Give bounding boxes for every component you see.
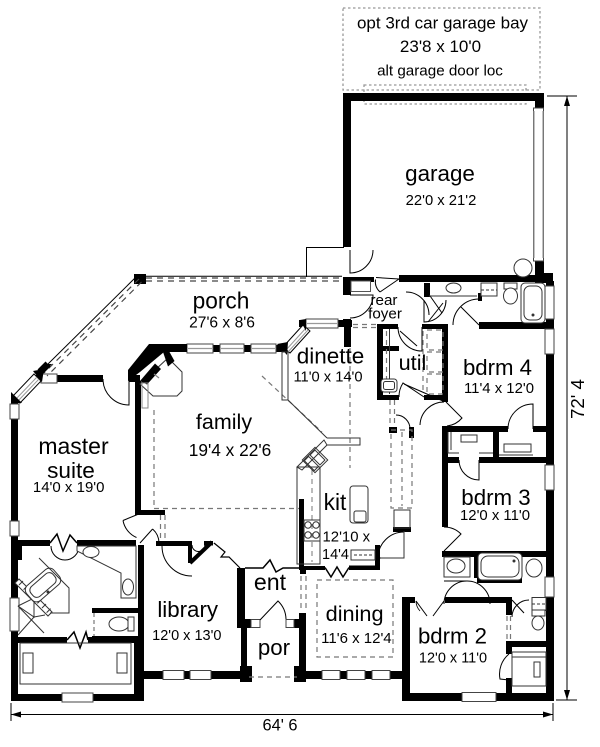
svg-text:14'0 x 19'0: 14'0 x 19'0	[33, 479, 105, 496]
svg-text:11'6 x 12'4: 11'6 x 12'4	[321, 630, 392, 647]
svg-text:library: library	[157, 597, 219, 622]
svg-text:ent: ent	[254, 569, 287, 595]
svg-text:garage: garage	[405, 161, 475, 186]
svg-text:23'8 x 10'0: 23'8 x 10'0	[400, 37, 481, 56]
svg-text:14'4: 14'4	[322, 547, 349, 563]
svg-text:dining: dining	[326, 601, 384, 626]
svg-text:alt garage door loc: alt garage door loc	[377, 63, 503, 80]
svg-text:foyer: foyer	[368, 306, 402, 323]
svg-text:family: family	[196, 410, 252, 434]
svg-text:27'6 x 8'6: 27'6 x 8'6	[189, 315, 255, 332]
svg-text:bdrm 2: bdrm 2	[418, 624, 487, 649]
svg-text:72' 4: 72' 4	[567, 379, 588, 419]
svg-text:11'0 x 14'0: 11'0 x 14'0	[293, 370, 362, 386]
svg-text:12'0 x 11'0: 12'0 x 11'0	[419, 651, 487, 667]
svg-text:19'4 x 22'6: 19'4 x 22'6	[189, 440, 272, 460]
svg-text:bdrm 3: bdrm 3	[461, 485, 530, 510]
svg-text:dinette: dinette	[297, 344, 365, 369]
svg-text:12'10 x: 12'10 x	[323, 530, 371, 546]
svg-text:11'4 x 12'0: 11'4 x 12'0	[464, 381, 534, 397]
svg-text:22'0 x 21'2: 22'0 x 21'2	[406, 193, 477, 209]
svg-text:opt 3rd car garage bay: opt 3rd car garage bay	[357, 14, 529, 33]
svg-text:bdrm 4: bdrm 4	[463, 355, 532, 380]
svg-text:64' 6: 64' 6	[262, 717, 297, 735]
svg-text:kit: kit	[324, 489, 347, 515]
svg-text:12'0 x 11'0: 12'0 x 11'0	[460, 508, 530, 524]
svg-text:por: por	[258, 635, 291, 660]
svg-text:master: master	[38, 433, 109, 459]
svg-text:12'0 x 13'0: 12'0 x 13'0	[152, 628, 221, 644]
svg-text:util: util	[399, 350, 427, 375]
svg-text:porch: porch	[193, 288, 250, 314]
